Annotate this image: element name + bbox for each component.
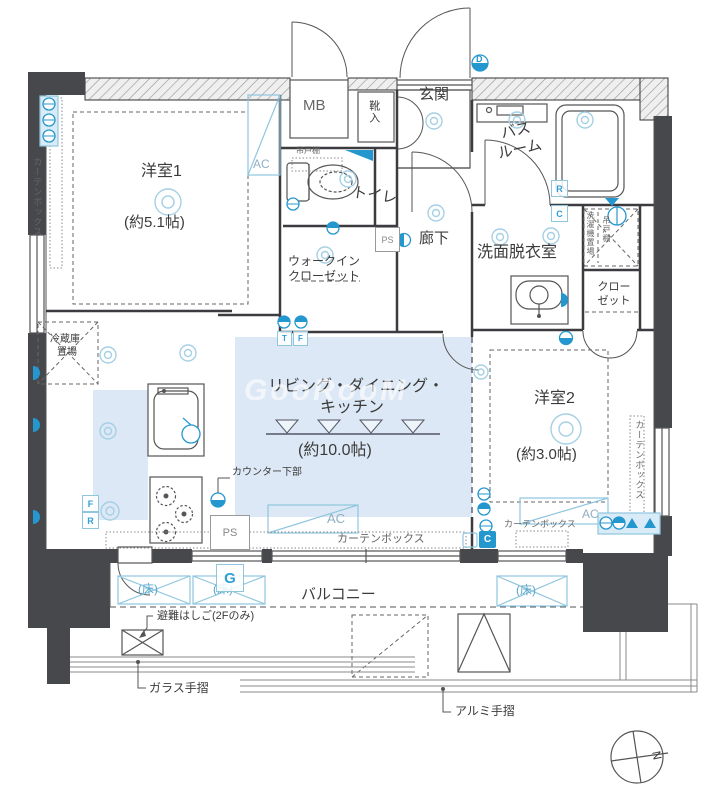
curtain-box-yoshitsu2: カーテンボックス xyxy=(504,519,576,530)
curtain-box-ldk: カーテンボックス xyxy=(337,533,425,547)
hall-label: 廊下 xyxy=(419,230,449,249)
hanging-shelf-toilet: 吊戸棚 xyxy=(296,146,320,156)
room-yoshitsu1-size: (約5.1帖) xyxy=(124,214,185,233)
escape-ladder-label: 避難はしご(2Fのみ) xyxy=(157,610,254,624)
floor-plan-page: .w{fill:#47484c;} .ln{stroke:#3c3c40;str… xyxy=(0,0,708,800)
stove xyxy=(150,477,202,543)
marker-f: F xyxy=(293,331,308,346)
fridge-label-line2: 置場 xyxy=(57,347,77,360)
marker-r: R xyxy=(551,180,568,197)
meter-box-label: MB xyxy=(303,97,326,116)
curtain-box-left: カーテンボックス xyxy=(31,157,42,237)
ps-box-1: PS xyxy=(375,227,400,252)
fridge-label-line1: 冷蔵庫 xyxy=(50,334,80,347)
curtain-box-right: カーテンボックス xyxy=(633,420,644,500)
counter-lower-label: カウンター下部 xyxy=(232,467,302,480)
ldk-size: (約10.0帖) xyxy=(298,441,372,461)
closet-label: クロー ゼット xyxy=(592,281,636,309)
washer-space-label: 洗濯機置場 xyxy=(585,211,595,256)
room-yoshitsu1-label: 洋室1 xyxy=(141,162,182,182)
leader-lines xyxy=(136,616,451,712)
room-yoshitsu2-size: (約3.0帖) xyxy=(516,446,577,465)
hanging-shelf-washroom: 吊戸棚 xyxy=(601,216,611,243)
marker-g: G xyxy=(216,564,244,592)
marker-t: T xyxy=(277,331,292,346)
meter-box xyxy=(290,22,348,138)
entrance-label: 玄関 xyxy=(419,86,449,105)
floor-mark-1: (床) xyxy=(138,582,158,597)
room-yoshitsu2-label: 洋室2 xyxy=(534,389,575,409)
floor-mark-3: (床) xyxy=(516,583,536,598)
ps-box-2: PS xyxy=(210,515,250,550)
entrance-door xyxy=(397,8,472,90)
yoshitsu2-floor-border xyxy=(490,350,608,502)
watermark: GooRooM xyxy=(244,374,408,408)
wic-label: ウォークイン クローゼット xyxy=(288,254,360,284)
glass-rail-label: ガラス手摺 xyxy=(149,681,209,696)
marker-f-kitchen: F xyxy=(82,495,99,512)
marker-d: D xyxy=(476,54,483,65)
yoshitsu1-floor-border xyxy=(73,112,248,304)
marker-r-kitchen: R xyxy=(82,512,99,529)
marker-c: C xyxy=(551,205,568,222)
ac-label-2: AC xyxy=(327,511,345,527)
ac-label-3: AC xyxy=(582,507,599,522)
washbasin xyxy=(511,276,568,324)
balcony-label: バルコニー xyxy=(301,586,376,605)
alumi-rail-label: アルミ手摺 xyxy=(455,704,515,719)
marker-c-filled: C xyxy=(479,531,496,548)
kitchen-sink xyxy=(148,384,204,456)
ac-label-1: AC xyxy=(253,157,270,172)
shoe-cabinet-label: 靴入 xyxy=(366,100,380,124)
washroom-label: 洗面脱衣室 xyxy=(477,243,557,263)
counter-leader xyxy=(211,478,230,507)
